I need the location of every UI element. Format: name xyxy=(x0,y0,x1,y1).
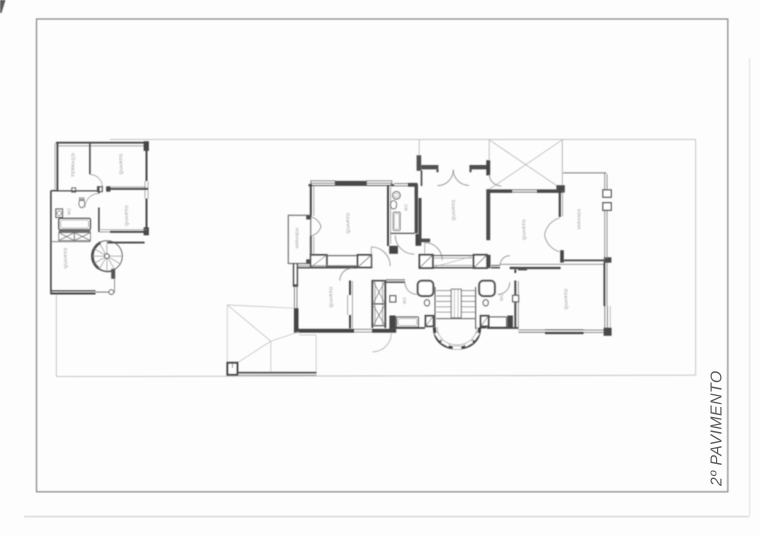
svg-text:QUARTO: QUARTO xyxy=(124,205,129,226)
svg-text:WC: WC xyxy=(402,297,407,304)
svg-text:QUARTO: QUARTO xyxy=(119,153,124,174)
svg-text:TERRAÇO: TERRAÇO xyxy=(71,153,76,177)
svg-text:VARANDA: VARANDA xyxy=(295,228,300,249)
svg-text:QUARTO: QUARTO xyxy=(329,286,334,307)
svg-text:VARANDA: VARANDA xyxy=(577,209,582,230)
svg-text:WC: WC xyxy=(404,204,409,211)
svg-text:WC: WC xyxy=(67,208,72,215)
svg-text:QUARTO: QUARTO xyxy=(451,199,456,220)
svg-text:QUARTO: QUARTO xyxy=(346,212,351,233)
svg-text:QUARTO: QUARTO xyxy=(63,247,68,268)
svg-text:WC: WC xyxy=(499,294,504,301)
svg-text:2º PAVIMENTO: 2º PAVIMENTO xyxy=(709,370,726,487)
svg-text:QUARTO: QUARTO xyxy=(522,219,527,240)
svg-text:QUARTO: QUARTO xyxy=(564,288,569,309)
